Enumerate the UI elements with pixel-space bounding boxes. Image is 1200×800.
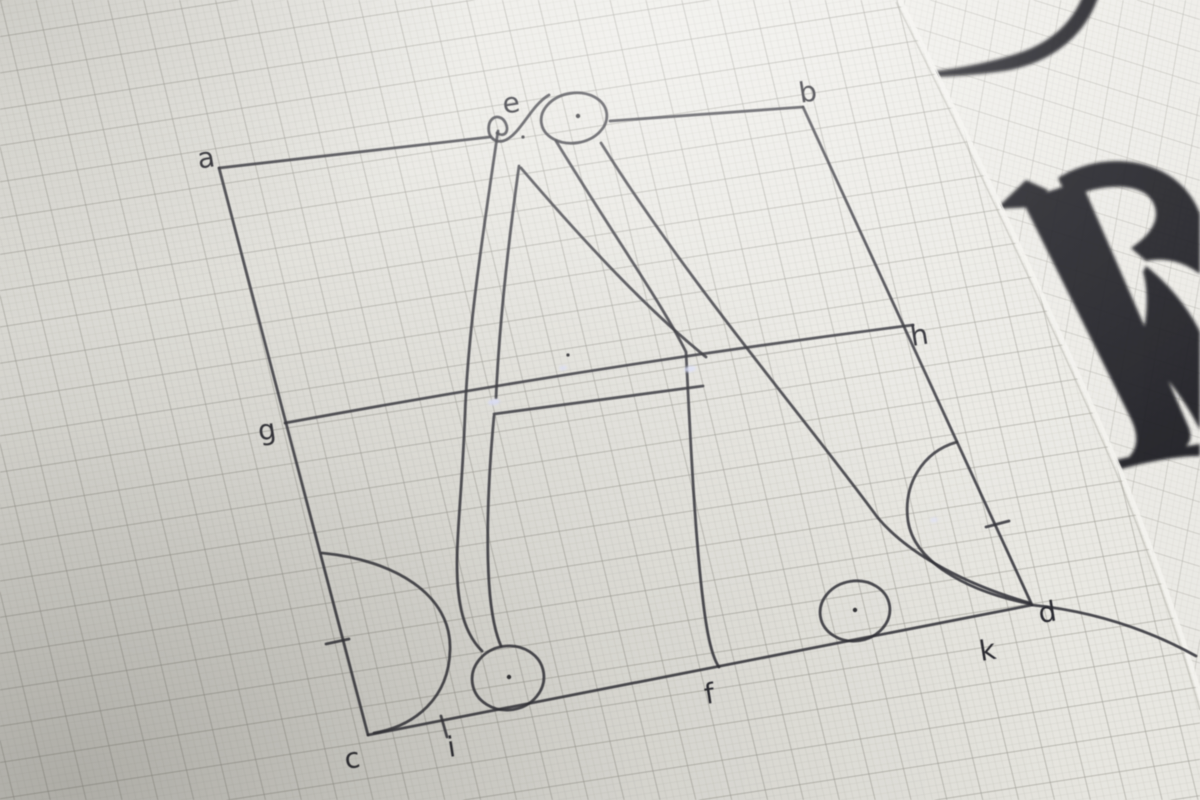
ink-speck [521, 135, 524, 138]
scene-canvas: a b e g h c i f k d [0, 0, 1200, 800]
photo-of-lettering-construction: a b e g h c i f k d [0, 0, 1200, 800]
ink-speck [566, 353, 569, 356]
